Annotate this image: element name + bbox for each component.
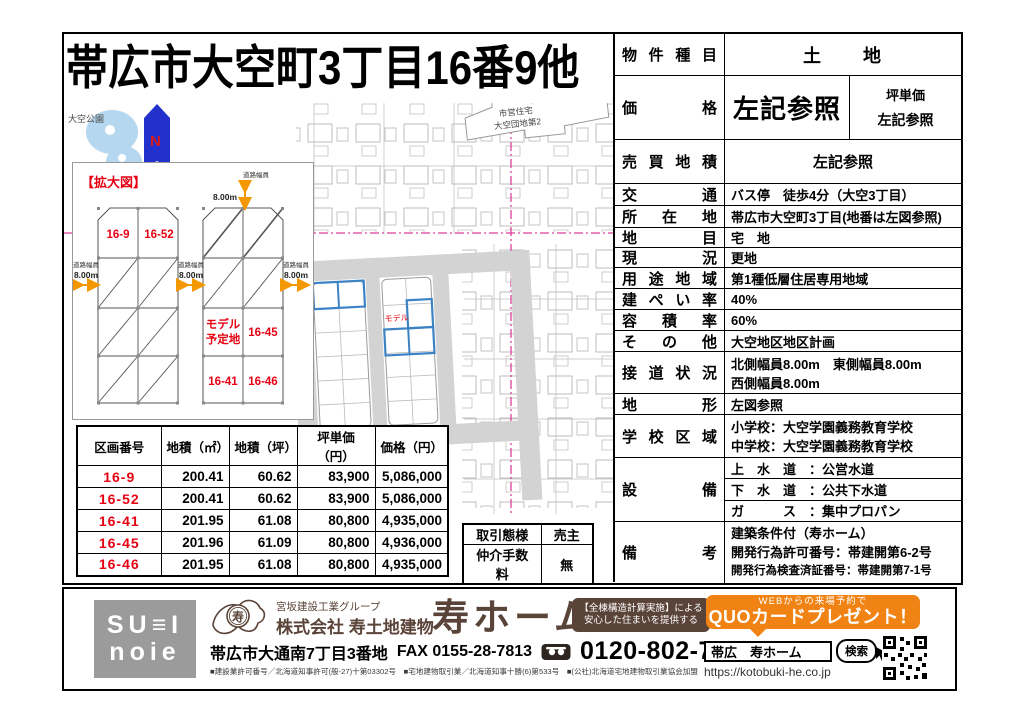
area-m2: 201.96 (161, 532, 229, 554)
main-content-box: モデル 大空公園 N 市営住宅 大空団地第2 (62, 32, 963, 585)
value-other: 大空地区地区計画 (725, 331, 961, 351)
col-unit-price: 坪単価（円） (297, 426, 375, 466)
price: 4,935,000 (375, 554, 448, 576)
col-price: 価格（円） (375, 426, 448, 466)
tsubo-unit-price-label: 坪単価 (886, 85, 925, 104)
label-building-coverage: 建 ぺ い 率 (615, 289, 725, 309)
price: 5,086,000 (375, 488, 448, 510)
deal-type-value: 売主 (541, 524, 593, 545)
label-zoning: 用 途 地 域 (615, 268, 725, 288)
row-price: 価 格 左記参照 坪単価 左記参照 (615, 76, 961, 140)
value-remarks-3: 開発行為検査済証番号：帯建開第7-1号 (731, 563, 955, 580)
brand-name: 寿ホーム (432, 587, 595, 641)
label-floor-area-ratio: 容 積 率 (615, 310, 725, 330)
lot-number: 16-9 (77, 466, 161, 488)
badge-line1: 【全棟構造計算実施】による (579, 603, 702, 615)
row-utilities: 設 備 上 水 道 ：公営水道 下 水 道 ：公共下水道 ガ ス ：集中プロパン (615, 458, 961, 522)
inset-heading: 【拡大図】 (81, 175, 146, 190)
label-school-district: 学 校 区 域 (615, 415, 725, 457)
value-price: 左記参照 (725, 76, 849, 139)
lot-number: 16-45 (77, 532, 161, 554)
table-row: 仲介手数料 無 (463, 545, 593, 585)
label-price: 価 格 (615, 76, 725, 139)
inset-lot-16-52: 16-52 (144, 229, 173, 241)
lot-number: 16-52 (77, 488, 161, 510)
road-width-label-top: 道路幅員 (243, 170, 270, 179)
row-school-district: 学 校 区 域 小学校：大空学園義務教育学校 中学校：大空学園義務教育学校 (615, 415, 961, 458)
lot-number: 16-41 (77, 510, 161, 532)
road-width-value-left: 8.00m (74, 270, 99, 280)
area-m2: 201.95 (161, 510, 229, 532)
company-name: 株式会社 寿土地建物 (276, 613, 434, 638)
row-sale-area: 売 買 地 積 左記参照 (615, 140, 961, 184)
unit-price: 80,800 (297, 532, 375, 554)
search-input[interactable]: 帯広 寿ホーム (704, 641, 832, 662)
value-school-elementary: 小学校：大空学園義務教育学校 (731, 417, 955, 436)
row-location: 所 在 地 帯広市大空町3丁目(地番は左図参照) (615, 206, 961, 228)
row-other: そ の 他 大空地区地区計画 (615, 331, 961, 352)
table-row: 取引態様 売主 (463, 524, 593, 545)
flyer-title: 帯広市大空町3丁目16番9他 (66, 36, 612, 103)
price: 4,936,000 (375, 532, 448, 554)
area-tsubo: 61.09 (229, 532, 297, 554)
row-zoning: 用 途 地 域 第1種低層住居専用地域 (615, 268, 961, 289)
table-row: 16-52 200.41 60.62 83,900 5,086,000 (77, 488, 448, 510)
value-property-type: 土 地 (725, 34, 961, 75)
value-remarks-1: 建築条件付（寿ホーム） (731, 525, 955, 544)
value-gas: ガ ス ：集中プロパン (725, 501, 961, 521)
inset-model-label-2: 予定地 (206, 332, 241, 346)
label-utilities: 設 備 (615, 458, 725, 521)
road-width-label-middle: 道路幅員 (178, 260, 205, 269)
park-label: 大空公園 (68, 113, 104, 124)
model-home-label: モデル (384, 312, 408, 323)
row-transport: 交 通 バス停 徒歩4分（大空3丁目） (615, 184, 961, 206)
road-width-label-right: 道路幅員 (283, 260, 310, 269)
fax-number: FAX 0155-28-7813 (397, 643, 532, 661)
lot-price-table: 区画番号 地積（㎡） 地積（坪） 坪単価（円） 価格（円） 16-9 200.4… (76, 425, 449, 577)
area-tsubo: 61.08 (229, 510, 297, 532)
search-button[interactable]: 検索 (836, 639, 877, 663)
unit-price: 80,800 (297, 554, 375, 576)
unit-price: 83,900 (297, 488, 375, 510)
website-url[interactable]: https://kotobuki-he.co.jp (704, 665, 831, 679)
area-tsubo: 60.62 (229, 466, 297, 488)
area-m2: 200.41 (161, 466, 229, 488)
brokerage-fee-label: 仲介手数料 (463, 545, 541, 585)
badge-line2: 安心した住まいを提供する (584, 615, 698, 627)
row-building-coverage: 建 ぺ い 率 40% (615, 289, 961, 310)
row-floor-area-ratio: 容 積 率 60% (615, 310, 961, 331)
label-road-access: 接 道 状 況 (615, 352, 725, 393)
label-current-state: 現 況 (615, 248, 725, 267)
value-building-coverage: 40% (725, 289, 961, 309)
area-m2: 201.95 (161, 554, 229, 576)
bubble-line1: WEBからの来場予約で (759, 596, 868, 607)
inset-lot-16-46: 16-46 (248, 376, 277, 388)
road-width-value-top: 8.00m (213, 192, 238, 202)
inset-lot-16-45: 16-45 (248, 327, 278, 339)
area-tsubo: 61.08 (229, 554, 297, 576)
footer: SU≡I noie 寿 宮坂建設工業グループ 株式会社 寿土地建物 寿ホーム 【… (62, 587, 957, 691)
tsubo-unit-price-value: 左記参照 (878, 110, 934, 130)
price: 4,935,000 (375, 510, 448, 532)
row-road-access: 接 道 状 況 北側幅員8.00m 東側幅員8.00m 西側幅員8.00m (615, 352, 961, 394)
value-current-state: 更地 (725, 248, 961, 267)
structure-calc-badge: 【全棟構造計算実施】による 安心した住まいを提供する (572, 598, 710, 632)
value-transport: バス停 徒歩4分（大空3丁目） (725, 184, 961, 205)
label-sale-area: 売 買 地 積 (615, 140, 725, 183)
company-address: 帯広市大通南7丁目3番地 (210, 640, 388, 664)
inset-lot-16-9: 16-9 (106, 229, 129, 241)
table-row: 16-9 200.41 60.62 83,900 5,086,000 (77, 466, 448, 488)
value-road-access-1: 北側幅員8.00m 東側幅員8.00m (731, 354, 955, 373)
value-location: 帯広市大空町3丁目(地番は左図参照) (725, 206, 961, 227)
road-width-value-middle: 8.00m (179, 270, 204, 280)
label-other: そ の 他 (615, 331, 725, 351)
road-width-label-left: 道路幅員 (73, 260, 100, 269)
value-zoning: 第1種低層住居専用地域 (725, 268, 961, 288)
suei-noie-logo: SU≡I noie (94, 600, 196, 678)
inset-model-label-1: モデル (206, 317, 241, 331)
price: 5,086,000 (375, 466, 448, 488)
row-current-state: 現 況 更地 (615, 248, 961, 268)
label-land-shape: 地 形 (615, 394, 725, 414)
tsubo-unit-price-cell: 坪単価 左記参照 (849, 76, 961, 139)
table-row: 16-41 201.95 61.08 80,800 4,935,000 (77, 510, 448, 532)
qr-code (882, 635, 928, 686)
area-tsubo: 60.62 (229, 488, 297, 510)
freedial-icon (541, 643, 571, 661)
label-property-type: 物 件 種 目 (615, 34, 725, 75)
value-floor-area-ratio: 60% (725, 310, 961, 330)
value-sale-area: 左記参照 (725, 140, 961, 183)
row-land-category: 地 目 宅 地 (615, 228, 961, 248)
flyer-page: モデル 大空公園 N 市営住宅 大空団地第2 (0, 0, 1024, 724)
table-header-row: 区画番号 地積（㎡） 地積（坪） 坪単価（円） 価格（円） (77, 426, 448, 466)
unit-price: 83,900 (297, 466, 375, 488)
lot-number: 16-46 (77, 554, 161, 576)
table-row: 16-45 201.96 61.09 80,800 4,936,000 (77, 532, 448, 554)
value-land-shape: 左図参照 (725, 394, 961, 414)
bubble-line2: QUOカードプレゼント！ (708, 607, 917, 629)
enlarged-map-inset: 【拡大図】 (72, 162, 314, 420)
value-school-junior: 中学校：大空学園義務教育学校 (731, 436, 955, 455)
value-water: 上 水 道 ：公営水道 (725, 458, 961, 479)
unit-price: 80,800 (297, 510, 375, 532)
suei-logo-line1: SU≡I (107, 612, 183, 640)
property-details-table: 物 件 種 目 土 地 価 格 左記参照 坪単価 左記参照 売 買 地 積 左記… (613, 34, 961, 582)
table-row: 16-46 201.95 61.08 80,800 4,935,000 (77, 554, 448, 576)
value-remarks-2: 開発行為許可番号：帯建開第6-2号 (731, 544, 955, 563)
kotobuki-mark: 寿 (232, 609, 244, 624)
brokerage-fee-value: 無 (541, 545, 593, 585)
label-remarks: 備 考 (615, 522, 725, 583)
value-sewer: 下 水 道 ：公共下水道 (725, 479, 961, 500)
deal-type-table: 取引態様 売主 仲介手数料 無 (462, 523, 594, 585)
group-name: 宮坂建設工業グループ (276, 599, 380, 614)
quo-card-bubble: WEBからの来場予約で QUOカードプレゼント！ (706, 595, 920, 629)
area-m2: 200.41 (161, 488, 229, 510)
label-location: 所 在 地 (615, 206, 725, 227)
label-land-category: 地 目 (615, 228, 725, 247)
label-transport: 交 通 (615, 184, 725, 205)
row-property-type: 物 件 種 目 土 地 (615, 34, 961, 76)
north-arrow-icon: N (144, 104, 170, 168)
col-lot-number: 区画番号 (77, 426, 161, 466)
svg-text:N: N (150, 133, 161, 150)
value-road-access-2: 西側幅員8.00m (731, 373, 955, 392)
row-land-shape: 地 形 左図参照 (615, 394, 961, 415)
road-width-value-right: 8.00m (284, 270, 309, 280)
suei-logo-line2: noie (109, 639, 180, 667)
col-area-m2: 地積（㎡） (161, 426, 229, 466)
inset-lot-16-41: 16-41 (208, 376, 238, 388)
value-land-category: 宅 地 (725, 228, 961, 247)
row-remarks: 備 考 建築条件付（寿ホーム） 開発行為許可番号：帯建開第6-2号 開発行為検査… (615, 522, 961, 583)
enlarged-map-svg: 【拡大図】 (73, 163, 313, 419)
deal-type-label: 取引態様 (463, 524, 541, 545)
license-text: ■建設業許可番号／北海道知事許可(般-27)十第03302号 ■宅地建物取引業／… (210, 666, 698, 677)
col-area-tsubo: 地積（坪） (229, 426, 297, 466)
